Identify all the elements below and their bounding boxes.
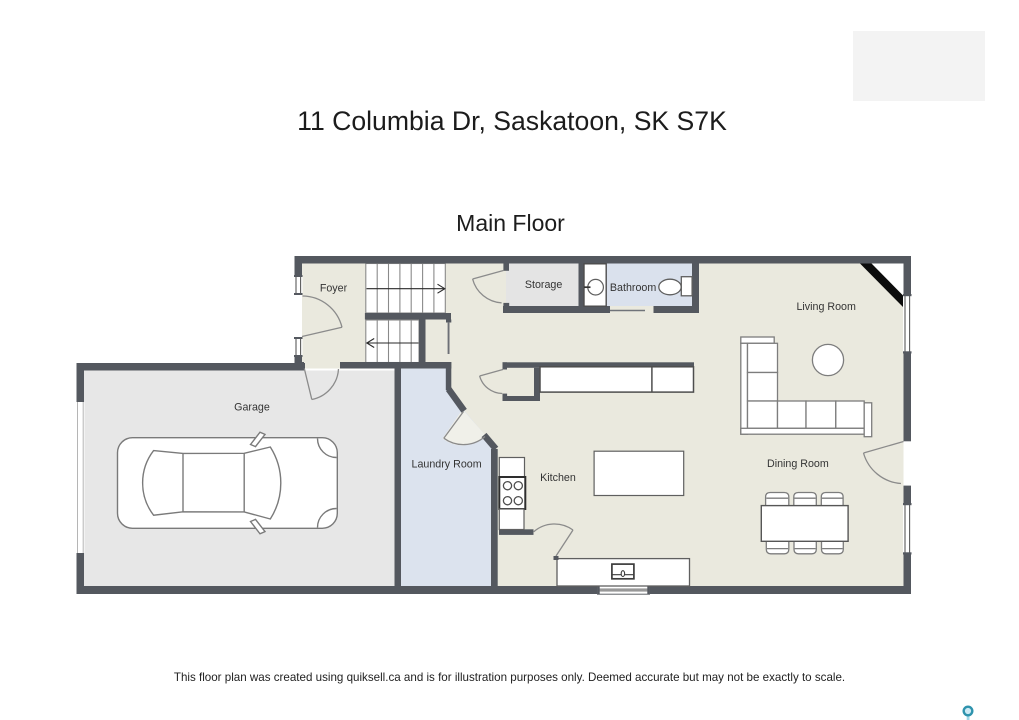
svg-text:This floor plan was created us: This floor plan was created using quikse… <box>174 671 845 684</box>
svg-text:Living Room: Living Room <box>796 301 855 313</box>
svg-text:Dining Room: Dining Room <box>767 458 829 470</box>
svg-text:Laundry Room: Laundry Room <box>412 458 482 470</box>
svg-text:11 Columbia Dr, Saskatoon, SK: 11 Columbia Dr, Saskatoon, SK S7K <box>297 106 727 136</box>
svg-text:Garage: Garage <box>234 402 270 414</box>
svg-text:Kitchen: Kitchen <box>540 472 576 484</box>
svg-text:Main Floor: Main Floor <box>456 210 565 236</box>
svg-text:Foyer: Foyer <box>320 283 348 295</box>
svg-text:Storage: Storage <box>525 279 562 291</box>
svg-text:Bathroom: Bathroom <box>610 282 656 294</box>
